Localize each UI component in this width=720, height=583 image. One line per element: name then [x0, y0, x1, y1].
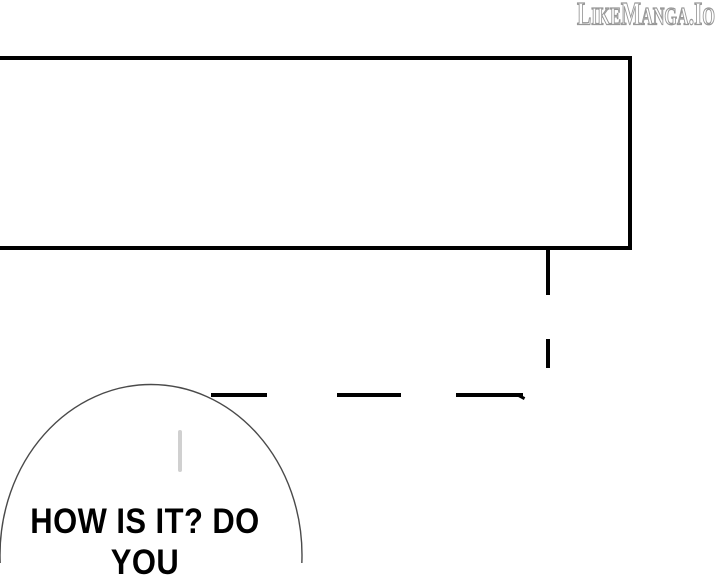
svg-text:LIKEMANGA.IO: LIKEMANGA.IO: [577, 0, 715, 30]
